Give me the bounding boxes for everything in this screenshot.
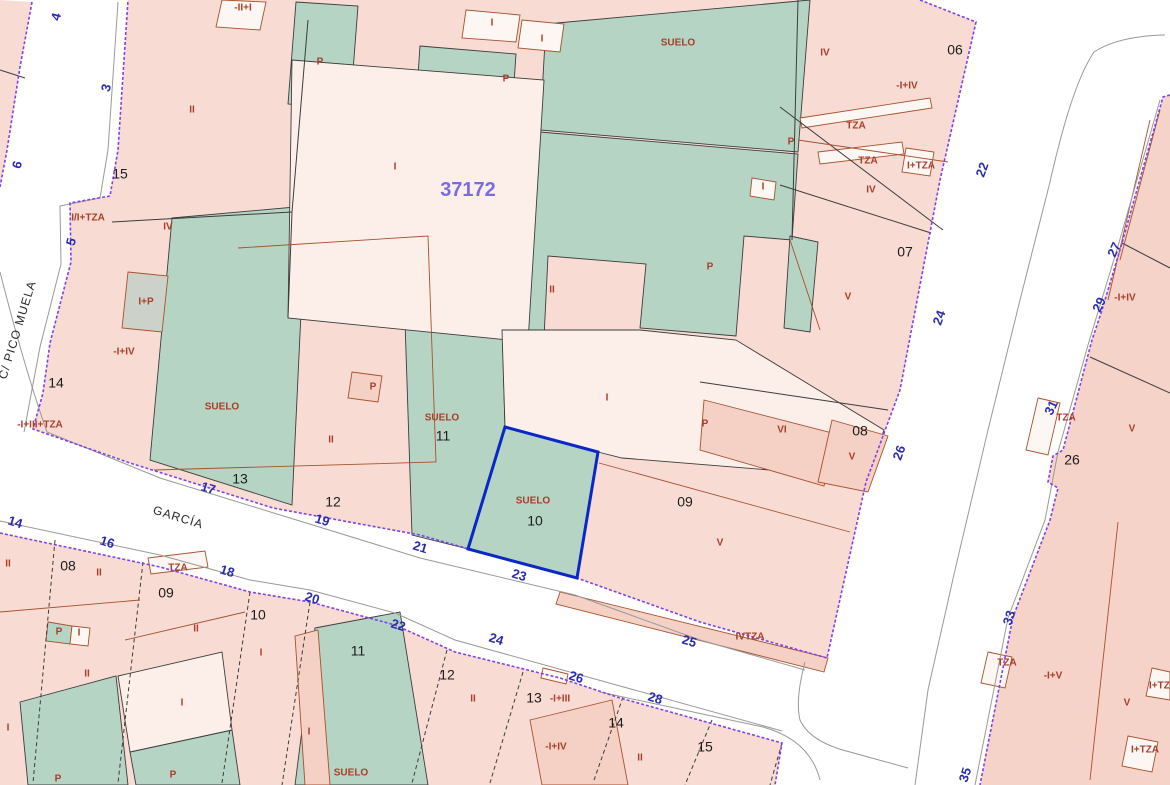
use-label: I+TZA (1149, 681, 1170, 692)
use-label: VI (777, 425, 787, 436)
street-number: 26 (889, 443, 908, 462)
street-edge (798, 662, 908, 768)
parcel-number: 14 (48, 375, 64, 391)
street-number: 24 (929, 308, 948, 327)
use-label: I (181, 698, 184, 709)
use-label: TZA (997, 658, 1016, 669)
map-canvas: -II+IPIIPSUELOIIIIV-I+IVTZATZAI+TZAPIVII… (0, 0, 1170, 785)
use-label: I (260, 648, 263, 659)
parcel-number: 12 (325, 494, 341, 510)
parcel-number: 06 (947, 42, 963, 58)
use-label: SUELO (661, 38, 696, 49)
use-label: I (394, 162, 397, 173)
street-number: 25 (680, 632, 698, 651)
use-label: -II+I (234, 3, 252, 14)
parcel-number: 09 (677, 494, 693, 510)
use-label: I (491, 18, 494, 29)
parcel-number: 15 (112, 166, 128, 182)
use-label: V (717, 538, 724, 549)
street-number: 22 (972, 160, 991, 179)
parcel-number: 14 (608, 715, 624, 731)
use-label: II (328, 435, 334, 446)
use-label: I+TZA (907, 161, 935, 172)
use-label: P (503, 74, 510, 85)
cadastral-map: -II+IPIIPSUELOIIIIV-I+IVTZATZAI+TZAPIVII… (0, 0, 1170, 785)
street-number: 14 (6, 513, 25, 532)
use-label: TZA (168, 563, 187, 574)
use-label: II (549, 285, 555, 296)
street-number: 24 (487, 630, 506, 649)
use-label: I (308, 727, 311, 738)
use-label: SUELO (205, 402, 240, 413)
use-label: IVTZA (736, 632, 765, 643)
use-label: II (189, 105, 195, 116)
parcel-number: 09 (158, 585, 174, 601)
use-label: V (849, 452, 856, 463)
use-label: II (637, 753, 643, 764)
use-label: I (78, 628, 81, 639)
parcel-number: 10 (250, 607, 266, 623)
use-label: I+P (138, 297, 154, 308)
parcel-number: 10 (527, 513, 543, 529)
use-label: SUELO (516, 496, 551, 507)
parcel-number: 13 (232, 471, 248, 487)
use-label: -I+IV (113, 347, 135, 358)
use-label: I+TZA (1131, 745, 1159, 756)
use-label: TZA (858, 156, 877, 167)
street-number: 4 (48, 11, 65, 23)
use-label: II (470, 694, 476, 705)
use-label: P (56, 627, 63, 638)
parcel-suelo-top[interactable] (540, 0, 810, 152)
parcel-number: 13 (526, 690, 542, 706)
street-number: 28 (646, 689, 664, 708)
street-number: 23 (510, 566, 528, 585)
use-label: IV (820, 48, 830, 59)
use-label: -I+IV (545, 742, 567, 753)
parcel-number: 26 (1064, 452, 1080, 468)
use-label: P (788, 137, 795, 148)
parcel-number: 12 (439, 667, 455, 683)
block-id-37172: 37172 (440, 179, 496, 201)
parcel-number: 07 (897, 244, 913, 260)
use-label: SUELO (425, 413, 460, 424)
use-label: IV (163, 222, 173, 233)
use-label: P (370, 382, 377, 393)
parcel-number: 08 (852, 423, 868, 439)
street-number: 16 (98, 533, 116, 552)
street-number: 18 (218, 562, 236, 581)
parcel-13-suelo[interactable] (150, 206, 306, 505)
block-east[interactable] (980, 95, 1170, 785)
use-label: I (606, 393, 609, 404)
use-label: II (5, 559, 11, 570)
street-number: 6 (9, 159, 25, 170)
use-label: IV (866, 185, 876, 196)
use-label: V (845, 292, 852, 303)
street-number: 35 (956, 765, 975, 783)
parcel-big-i-37172[interactable] (288, 60, 544, 342)
use-label: -I+IV (896, 81, 918, 92)
street-name: GARCÍA (151, 502, 205, 532)
use-label: II (96, 568, 102, 579)
use-label: II (84, 669, 90, 680)
use-label: -I+III (550, 694, 571, 705)
parcel-number: 11 (436, 428, 451, 444)
parcel-number: 11 (351, 643, 366, 659)
parcel-number: 15 (697, 739, 713, 755)
street-number: 21 (411, 538, 429, 557)
use-label: P (702, 419, 709, 430)
use-label: TZA (846, 121, 865, 132)
use-label: -I+IV (1114, 293, 1136, 304)
use-label: I (541, 34, 544, 45)
use-label: P (170, 770, 177, 781)
use-label: V (1124, 698, 1131, 709)
use-label: P (317, 57, 324, 68)
street-number: 3 (98, 82, 114, 93)
use-label: V (1129, 424, 1136, 435)
use-label: SUELO (334, 768, 369, 779)
use-label: -I+V (1044, 671, 1063, 682)
use-label: I/I+TZA (71, 213, 105, 224)
use-label: TZA (1056, 413, 1075, 424)
use-label: P (55, 774, 62, 785)
use-label: I (7, 723, 10, 734)
use-label: -I+III+TZA (17, 420, 63, 431)
use-label: II (193, 624, 199, 635)
parcel-number: 08 (60, 558, 76, 574)
use-label: P (707, 262, 714, 273)
use-label: I (762, 182, 765, 193)
building-p-12 (348, 372, 382, 402)
